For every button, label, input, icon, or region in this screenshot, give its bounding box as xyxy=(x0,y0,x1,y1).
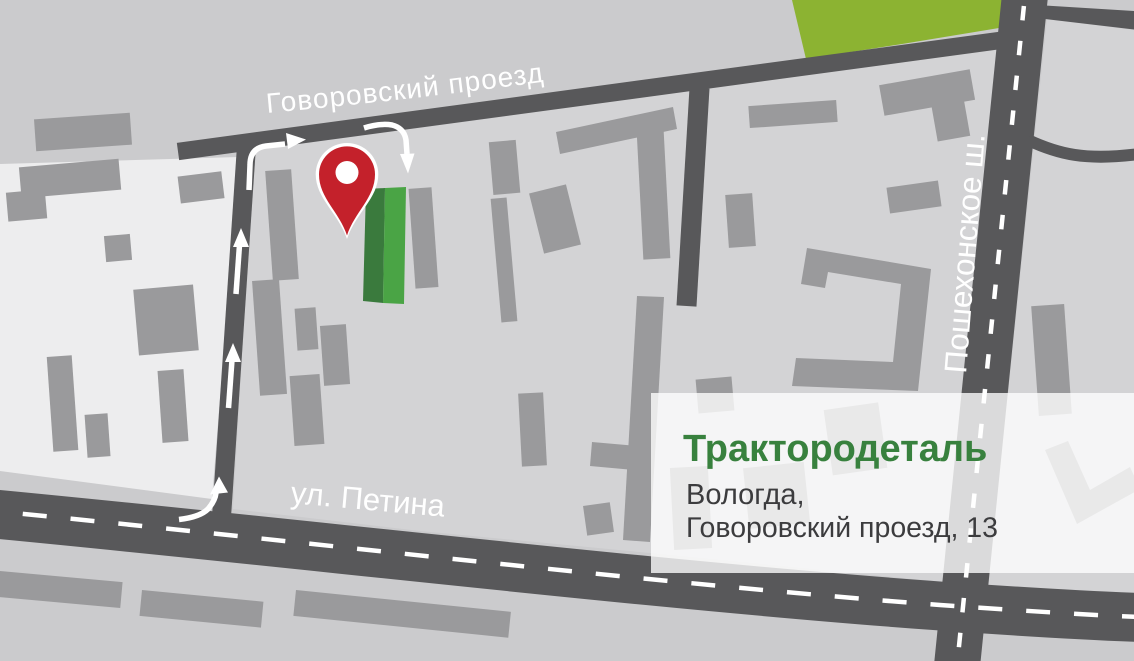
svg-text:Говоровский проезд, 13: Говоровский проезд, 13 xyxy=(686,512,998,544)
svg-text:Трактородеталь: Трактородеталь xyxy=(683,428,987,470)
svg-text:Вологда,: Вологда, xyxy=(686,479,805,511)
